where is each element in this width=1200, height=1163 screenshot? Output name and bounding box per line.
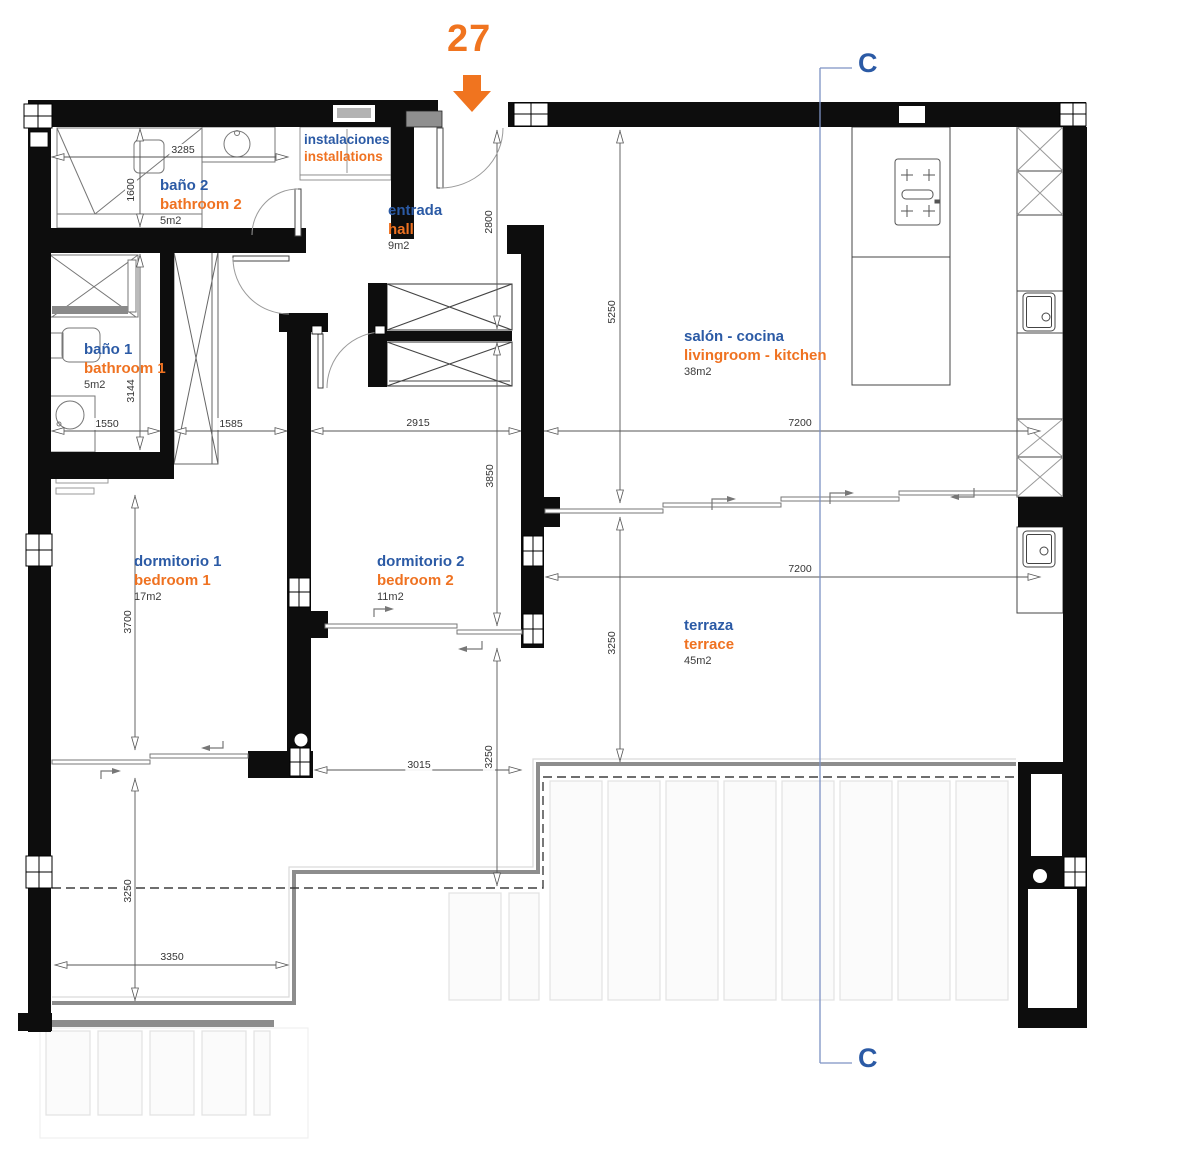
neighbor-railing xyxy=(44,1020,274,1027)
dimension-label: 3144 xyxy=(125,377,137,404)
floor-plan-canvas: 27 C C baño 2 bathroom 2 5m2 instalacion… xyxy=(0,0,1200,1163)
dimension-label: 3700 xyxy=(122,608,134,635)
dimension-label: 3350 xyxy=(158,951,185,963)
window-gap xyxy=(899,106,925,123)
unit-number: 27 xyxy=(447,18,491,61)
drain-icon xyxy=(1033,869,1047,883)
room-label-terrace: terraza terrace 45m2 xyxy=(684,616,734,669)
room-label-bathroom-2: baño 2 bathroom 2 5m2 xyxy=(160,176,242,229)
dimension-label: 7200 xyxy=(786,563,813,575)
dimension-label: 3015 xyxy=(405,759,432,771)
door-icon-entry xyxy=(437,128,503,188)
room-label-installations: instalaciones installations xyxy=(304,131,390,165)
dimension-label: 2800 xyxy=(483,208,495,235)
room-label-bedroom-2: dormitorio 2 bedroom 2 11m2 xyxy=(377,552,465,605)
washbasin-icon-2 xyxy=(49,396,95,452)
terrace-deck xyxy=(40,759,1016,1138)
door-icon-bathroom1-closet xyxy=(233,256,289,314)
entry-threshold xyxy=(406,111,442,127)
dimension-label: 3250 xyxy=(122,877,134,904)
dimension-label: 2915 xyxy=(404,417,431,429)
shower-icon xyxy=(50,255,138,317)
dimension-label: 1550 xyxy=(93,418,120,430)
room-label-livingroom-kitchen: salón - cocina livingroom - kitchen 38m2 xyxy=(684,327,827,380)
dimension-label: 3285 xyxy=(169,144,196,156)
dimension-label: 7200 xyxy=(786,417,813,429)
dimension-label: 5250 xyxy=(606,298,618,325)
dimension-label: 1585 xyxy=(217,418,244,430)
dimension-label: 3850 xyxy=(484,462,496,489)
shaft xyxy=(1031,774,1062,856)
section-label-top: C xyxy=(858,48,878,79)
sink-icon-2 xyxy=(1023,531,1055,567)
room-label-bedroom-1: dormitorio 1 bedroom 1 17m2 xyxy=(134,552,222,605)
sink-icon xyxy=(1023,293,1055,331)
room-label-hall: entrada hall 9m2 xyxy=(388,201,442,254)
drain-icon xyxy=(295,734,308,747)
dimension-label: 3250 xyxy=(606,629,618,656)
unit-arrow-icon xyxy=(453,75,491,112)
dimension-label: 3250 xyxy=(483,743,495,770)
section-label-bottom: C xyxy=(858,1043,878,1074)
cooktop-icon xyxy=(895,159,940,225)
dimension-label: 1600 xyxy=(125,176,137,203)
shaft xyxy=(1028,889,1077,1008)
